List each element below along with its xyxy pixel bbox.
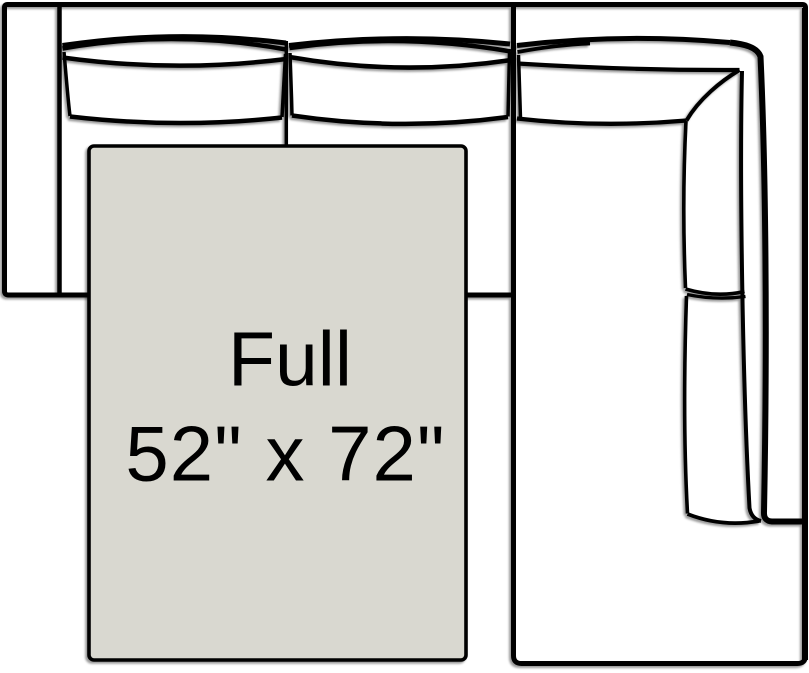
svg-text:52" x 72": 52" x 72" [125, 410, 445, 498]
svg-text:Full: Full [228, 317, 352, 403]
